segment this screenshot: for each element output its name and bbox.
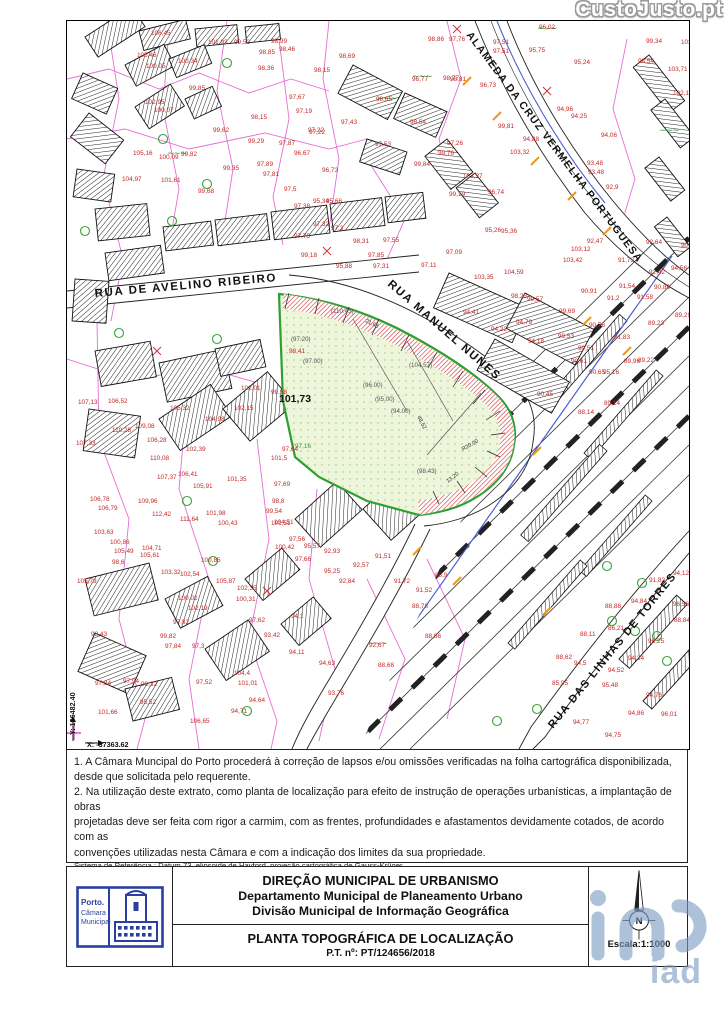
org-line-2: Departamento Municipal de Planeamento Ur… [173,889,588,904]
elevation-label: 95,75 [529,47,545,54]
elevation-label: 101,01 [238,680,258,687]
elevation-label: 90,45 [537,391,553,398]
elevation-label: 92,9 [606,184,619,191]
elevation-label: 107,13 [78,399,98,406]
elevation-label: 98,23 [511,293,527,300]
elevation-label: 95,52 [140,699,156,706]
elevation-label: 91,54 [619,283,635,290]
elevation-label: 89,23 [648,320,664,327]
elevation-label: 96,01 [661,711,677,718]
elevation-label: 102,35 [237,585,257,592]
elevation-label: 99,85 [189,85,205,92]
logo-cell: Porto. Câmara Municipal [67,867,173,966]
elevation-label: 97,69 [274,481,290,488]
elevation-label: 96,02 [539,24,555,31]
elevation-label: 105,91 [193,483,213,490]
elevation-label: 98,8 [272,498,285,505]
survey-tick-icon [493,112,501,120]
elevation-label: 96,73 [322,167,338,174]
parcel-label: (95.00) [375,396,395,403]
elevation-label: 98,15 [251,114,267,121]
elevation-label: 102,15 [234,405,254,412]
elevation-label: 97,11 [421,262,437,269]
elevation-label: 101,66 [98,709,118,716]
elevation-label: 99,82 [181,151,197,158]
elevation-label: 95,24 [574,59,590,66]
elevation-label: 97,81 [263,171,279,178]
elevation-label: 99,54 [266,508,282,515]
elevation-label: 90,47 [681,242,689,249]
elevation-label: 103,35 [474,274,494,281]
elevation-label: 98,31 [353,238,369,245]
elevation-label: 101,5 [271,455,287,462]
elevation-label: 94,76 [646,692,662,699]
elevation-label: 106,65 [190,718,210,725]
note-line-1: 1. A Câmara Muncipal do Porto procederá … [74,755,680,770]
cross-mark-icon [543,87,551,95]
elevation-label: 96,74 [488,189,504,196]
elevation-label: 98,54 [410,119,426,126]
elevation-label: 94,63 [319,660,335,667]
map-frame: ∼∼∼∼∼∼∼∼∼∼∼∼∼∼∼∼∼∼ 106,45105,46100,05100… [66,20,690,750]
elevation-label: 97,82 [173,619,189,626]
elevation-label: 100,86 [110,539,130,546]
pt-number: P.T. nº: PT/124656/2018 [173,947,588,961]
elevation-label: 97,89 [257,161,273,168]
parcel-label: 97,16 [295,443,311,450]
elevation-label: 102,39 [186,446,206,453]
elevation-label: 94,71 [231,708,247,715]
elevation-label: 103,71 [668,66,688,73]
elevation-label: 106,45 [151,30,171,37]
elevation-label: 94,86 [628,710,644,717]
elevation-label: 97,3 [331,225,344,232]
elevation-label: 103,27 [463,173,483,180]
elevation-label: 97,66 [295,556,311,563]
elevation-label: 91,83 [614,334,630,341]
elevation-label: 98,81 [450,76,466,83]
elevation-label: 103,42 [563,257,583,264]
elevation-label: 97,55 [383,237,399,244]
elevation-label: 99,68 [198,188,214,195]
elevation-label: 88,86 [425,633,441,640]
tree-icon [183,497,192,506]
elevation-label: 94,41 [463,309,479,316]
elevation-label: 99,57 [527,296,543,303]
elevation-label: 100,07 [154,107,174,114]
elevation-label: 98,36 [258,65,274,72]
elevation-label: 102,19 [188,605,208,612]
elevation-label: 90,86 [654,284,670,291]
elevation-label: 88,14 [578,409,594,416]
elevation-label: 110,28 [112,427,132,434]
tree-icon [115,329,124,338]
logo-text-porto: Porto. [81,898,104,907]
elevation-label: 100,34 [178,58,198,65]
elevation-label: 94,1 [291,613,304,620]
elevation-label: 88,62 [556,654,572,661]
elevation-label: 103,32 [161,569,181,576]
elevation-label: 99,82 [160,633,176,640]
elevation-label: 94,06 [601,132,617,139]
elevation-label: 101,93 [208,39,228,46]
elevation-label: 95,57 [304,543,320,550]
elevation-label: 106,79 [98,505,118,512]
elevation-label: 94,64 [249,697,265,704]
elevation-label: 90,51 [578,345,594,352]
parcel-label: (98.43) [417,468,437,475]
cross-mark-icon [323,247,331,255]
elevation-label: 95,88 [336,263,352,270]
cross-mark-icon [153,347,161,355]
elevation-label: 98,41 [289,348,305,355]
elevation-label: 99,29 [248,138,264,145]
elevation-label: 97,3 [192,643,205,650]
elevation-label: 98,6 [112,559,125,566]
elevation-label: 102,95 [145,99,165,106]
elevation-label: 90,61 [571,358,587,365]
title-cell: DIREÇÃO MUNICIPAL DE URBANISMO Departame… [173,867,588,966]
elevation-label: 94,11 [289,649,305,656]
elevation-label: 97,94 [123,678,139,685]
elevation-label: 89,29 [675,312,689,319]
elevation-label: 89,22 [638,357,654,364]
elevation-label: 91,52 [416,587,432,594]
elevation-label: 100,09 [159,154,179,161]
elevation-label: 92,67 [369,642,385,649]
elevation-label: 88,84 [674,617,689,624]
elevation-label: 93,76 [328,690,344,697]
elevation-label: 94,79 [516,319,532,326]
note-line-3: 2. Na utilização deste extrato, como pla… [74,785,680,815]
elevation-label: 97,51 [493,48,509,55]
elevation-label: 88,9 [435,572,448,579]
note-line-2: desde que solicitada pelo requerente. [74,770,680,785]
parcel-label: (110.43) [331,308,354,315]
elevation-label: 92,42 [649,269,665,276]
elevation-label: 105,61 [140,552,160,559]
elevation-label: 101,61 [161,177,181,184]
elevation-label: 97,85 [368,252,384,259]
elevation-label: 92,93 [324,548,340,555]
elevation-label: 97,67 [289,94,305,101]
elevation-label: 99,53 [558,333,574,340]
elevation-label: 92,64 [646,239,662,246]
org-line-3: Divisão Municipal de Informação Geográfi… [173,904,588,919]
elevation-label: 100,43 [218,520,238,527]
elevation-label: 97,22 [309,129,325,136]
elevation-label: 99,52 [234,39,250,46]
elevation-label: 97,5 [284,186,297,193]
elevation-label: 94,22 [491,326,507,333]
elevation-label: 91,72 [394,578,410,585]
elevation-label: 103,32 [510,149,530,156]
y-coordinate-label: Y: 166482.40 [68,692,77,735]
elevation-label: 94,25 [571,113,587,120]
elevation-label: 97,32 [313,221,329,228]
elevation-label: 94,18 [528,338,544,345]
tree-icon [81,227,90,236]
tree-icon [159,135,168,144]
elevation-label: 97,51 [493,39,509,46]
elevation-label: 100,31 [236,596,256,603]
elevation-label: 94,34 [628,655,644,662]
elevation-label: 95,26 [485,227,501,234]
elevation-label: 98,43 [91,631,107,638]
cross-mark-icon [453,25,461,33]
elevation-label: 105,87 [216,578,236,585]
elevation-label: 102,01 [241,385,261,392]
elevation-label: 95,48 [602,682,618,689]
elevation-label: 99,84 [414,161,430,168]
plan-title: PLANTA TOPOGRÁFICA DE LOCALIZAÇÃO [173,931,588,947]
elevation-label: 106,78 [90,496,110,503]
elevation-label: 97,26 [447,140,463,147]
elevation-label: 98,54 [638,58,654,65]
elevation-label: 93,48 [588,169,604,176]
elevation-label: 85,95 [552,680,568,687]
elevation-label: 100,42 [275,544,295,551]
elevation-label: 99,19 [449,191,465,198]
elevation-label: 99,62 [213,127,229,134]
elevation-label: 104,59 [504,269,524,276]
elevation-label: 93,48 [587,160,603,167]
elevation-label: 97,09 [446,249,462,256]
elevation-label: 97,84 [95,680,111,687]
tree-icon [603,562,612,571]
elevation-label: 106,28 [147,437,167,444]
elevation-label: 99,69 [559,308,575,315]
tree-icon [168,217,177,226]
elevation-label: 89,96 [624,358,640,365]
elevation-label: 88,78 [412,603,428,610]
vegetation-icon: ∼∼∼ [659,125,679,135]
iad-logo-icon [582,884,708,962]
elevation-label: 96,73 [480,82,496,89]
elevation-label: 98,65 [376,96,392,103]
note-line-4: projetadas deve ser feita com rigor a ca… [74,815,680,845]
elevation-label: 104,97 [122,176,142,183]
tree-icon [663,657,672,666]
elevation-label: 90,76 [589,322,605,329]
elevation-label: 99,18 [301,252,317,259]
elevation-label: 98,46 [279,46,295,53]
elevation-label: 95,36 [501,228,517,235]
page: CustoJusto.pt [0,0,725,1024]
elevation-label: 101,35 [227,476,247,483]
elevation-label: 105,46 [137,52,157,59]
elevation-label: 98,69 [339,53,355,60]
tree-icon [223,59,232,68]
street-label: RUA DAS LINHAS DE TORRES [546,570,679,730]
elevation-label: 95,25 [324,568,340,575]
parcel-label: 101,73 [279,393,311,405]
elevation-label: 88,68 [378,662,394,669]
elevation-label: 105,79 [77,578,97,585]
elevation-label: 95,16 [603,369,619,376]
elevation-label: 97,87 [279,140,295,147]
elevation-label: 97,43 [341,119,357,126]
elevation-label: 104,71 [142,545,162,552]
elevation-label: 97,31 [373,263,389,270]
elevation-label: 92,47 [587,238,603,245]
elevation-label: 107,37 [157,474,177,481]
survey-tick-icon [623,347,631,355]
elevation-label: 98,85 [259,49,275,56]
elevation-label: 103,12 [571,246,591,253]
elevation-label: 105,32 [170,405,190,412]
elevation-label: 97,56 [289,536,305,543]
elevation-label: 100,05 [146,63,166,70]
elevation-label: 101,51 [271,520,291,527]
survey-tick-icon [531,157,539,165]
logo-text-camara: Câmara [81,910,106,917]
elevation-label: 98,86 [428,36,444,43]
elevation-label: 99,34 [646,38,662,45]
elevation-label: 110,08 [150,455,170,462]
elevation-label: 97,38 [294,203,310,210]
elevation-label: 99,81 [498,123,514,130]
elevation-label: 88,11 [580,631,596,638]
elevation-label: 103,63 [94,529,114,536]
topographic-map: ∼∼∼∼∼∼∼∼∼∼∼∼∼∼∼∼∼∼ 106,45105,46100,05100… [67,21,689,749]
elevation-label: 94,56 [671,265,687,272]
elevation-label: 101,98 [206,510,226,517]
elevation-label: 99,76 [438,150,454,157]
org-line-1: DIREÇÃO MUNICIPAL DE URBANISMO [173,873,588,889]
elevation-label: 100,02 [178,595,198,602]
tree-icon [533,705,542,714]
elevation-label: 111,64 [180,516,199,523]
tree-icon [213,335,222,344]
custojusto-watermark: CustoJusto.pt [575,0,723,22]
elevation-label: 98,32 [141,681,157,688]
elevation-label: 97,52 [196,679,212,686]
elevation-label: 100,85 [201,557,221,564]
elevation-label: 98,15 [314,67,330,74]
logo-text-municipal: Municipal [81,919,111,926]
elevation-label: 97,62 [249,617,265,624]
porto-camara-municipal-logo: Porto. Câmara Municipal [76,886,164,948]
elevation-label: 91,58 [637,294,653,301]
tree-icon [493,717,502,726]
elevation-label: 104,4 [234,670,250,677]
note-line-5: convenções utilizadas nesta Câmara e com… [74,846,680,861]
elevation-label: 97,53 [375,141,391,148]
notes-box: 1. A Câmara Muncipal do Porto procederá … [66,749,688,863]
elevation-label: 93,42 [264,632,280,639]
parcel-label: (94.00) [391,408,411,415]
elevation-label: 88,88 [605,603,621,610]
elevation-label: 106,52 [108,398,128,405]
elevation-label: 94,52 [608,667,624,674]
elevation-label: 105,16 [133,150,153,157]
x-coordinate-label: X: -37363.62 [87,740,129,749]
elevation-label: 96,25 [648,638,664,645]
iad-watermark: iad [582,884,708,992]
elevation-label: 98,99 [271,38,287,45]
elevation-label: 90,91 [581,288,597,295]
elevation-label: 95,66 [326,198,342,205]
elevation-label: 89,14 [604,400,620,407]
elevation-label: 91,2 [607,295,620,302]
elevation-label: 106,41 [178,471,198,478]
elevation-label: 94,5 [574,660,587,667]
elevation-label: 94,75 [605,732,621,739]
parcel-label: (97.00) [303,358,323,365]
elevation-label: 97,75 [294,233,310,240]
elevation-label: 96,67 [294,150,310,157]
elevation-label: 103,7 [681,39,689,46]
parcel-label: (96.00) [363,382,383,389]
elevation-label: 94,88 [523,136,539,143]
survey-tick-icon [453,577,461,585]
elevation-label: 109,96 [138,498,158,505]
elevation-label: 102,54 [180,571,200,578]
elevation-label: 97,76 [449,36,465,43]
elevation-label: 96,56 [673,601,689,608]
elevation-label: 104,98 [205,416,225,423]
elevation-label: 92,57 [353,562,369,569]
elevation-label: 109,08 [135,423,155,430]
elevation-label: 107,33 [76,440,96,447]
elevation-label: 97,84 [165,643,181,650]
parcel-label: (97.20) [291,336,311,343]
elevation-label: 96,77 [412,76,428,83]
elevation-label: 105,49 [114,548,134,555]
elevation-label: 112,42 [152,511,172,518]
elevation-label: 92,84 [339,578,355,585]
elevation-label: 99,35 [223,165,239,172]
parcel-label: (104.57) [409,362,432,369]
elevation-label: 97,19 [296,108,312,115]
elevation-label: 91,51 [375,553,391,560]
elevation-label: 102,18 [673,90,689,97]
elevation-label: 94,96 [557,106,573,113]
elevation-label: 94,77 [573,719,589,726]
